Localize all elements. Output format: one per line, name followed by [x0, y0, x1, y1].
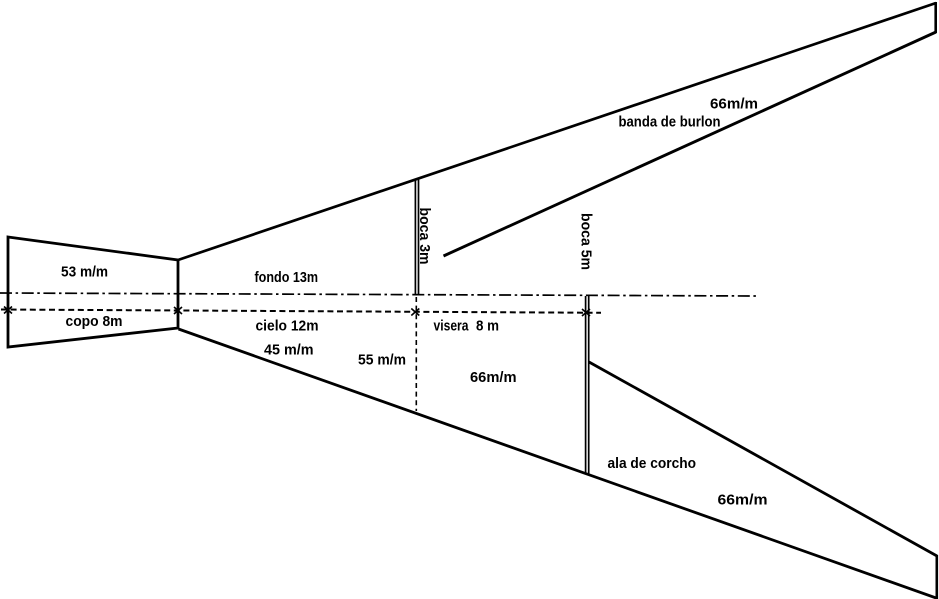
svg-text:45 m/m: 45 m/m: [264, 342, 314, 359]
svg-text:boca 5m: boca 5m: [578, 213, 595, 270]
svg-text:copo 8m: copo 8m: [66, 313, 123, 330]
svg-text:53 m/m: 53 m/m: [61, 264, 108, 281]
svg-text:banda de burlon: banda de burlon: [619, 114, 721, 131]
svg-text:55 m/m: 55 m/m: [358, 352, 406, 369]
svg-text:cielo 12m: cielo 12m: [256, 318, 319, 335]
svg-text:66m/m: 66m/m: [718, 492, 768, 509]
svg-text:visera: visera: [434, 318, 470, 335]
svg-text:66m/m: 66m/m: [710, 96, 758, 113]
svg-text:boca 3m: boca 3m: [416, 208, 433, 265]
svg-text:fondo 13m: fondo 13m: [255, 269, 319, 286]
svg-text:ala de corcho: ala de corcho: [608, 455, 697, 472]
svg-text:66m/m: 66m/m: [470, 369, 517, 386]
svg-text:8 m: 8 m: [476, 318, 499, 335]
